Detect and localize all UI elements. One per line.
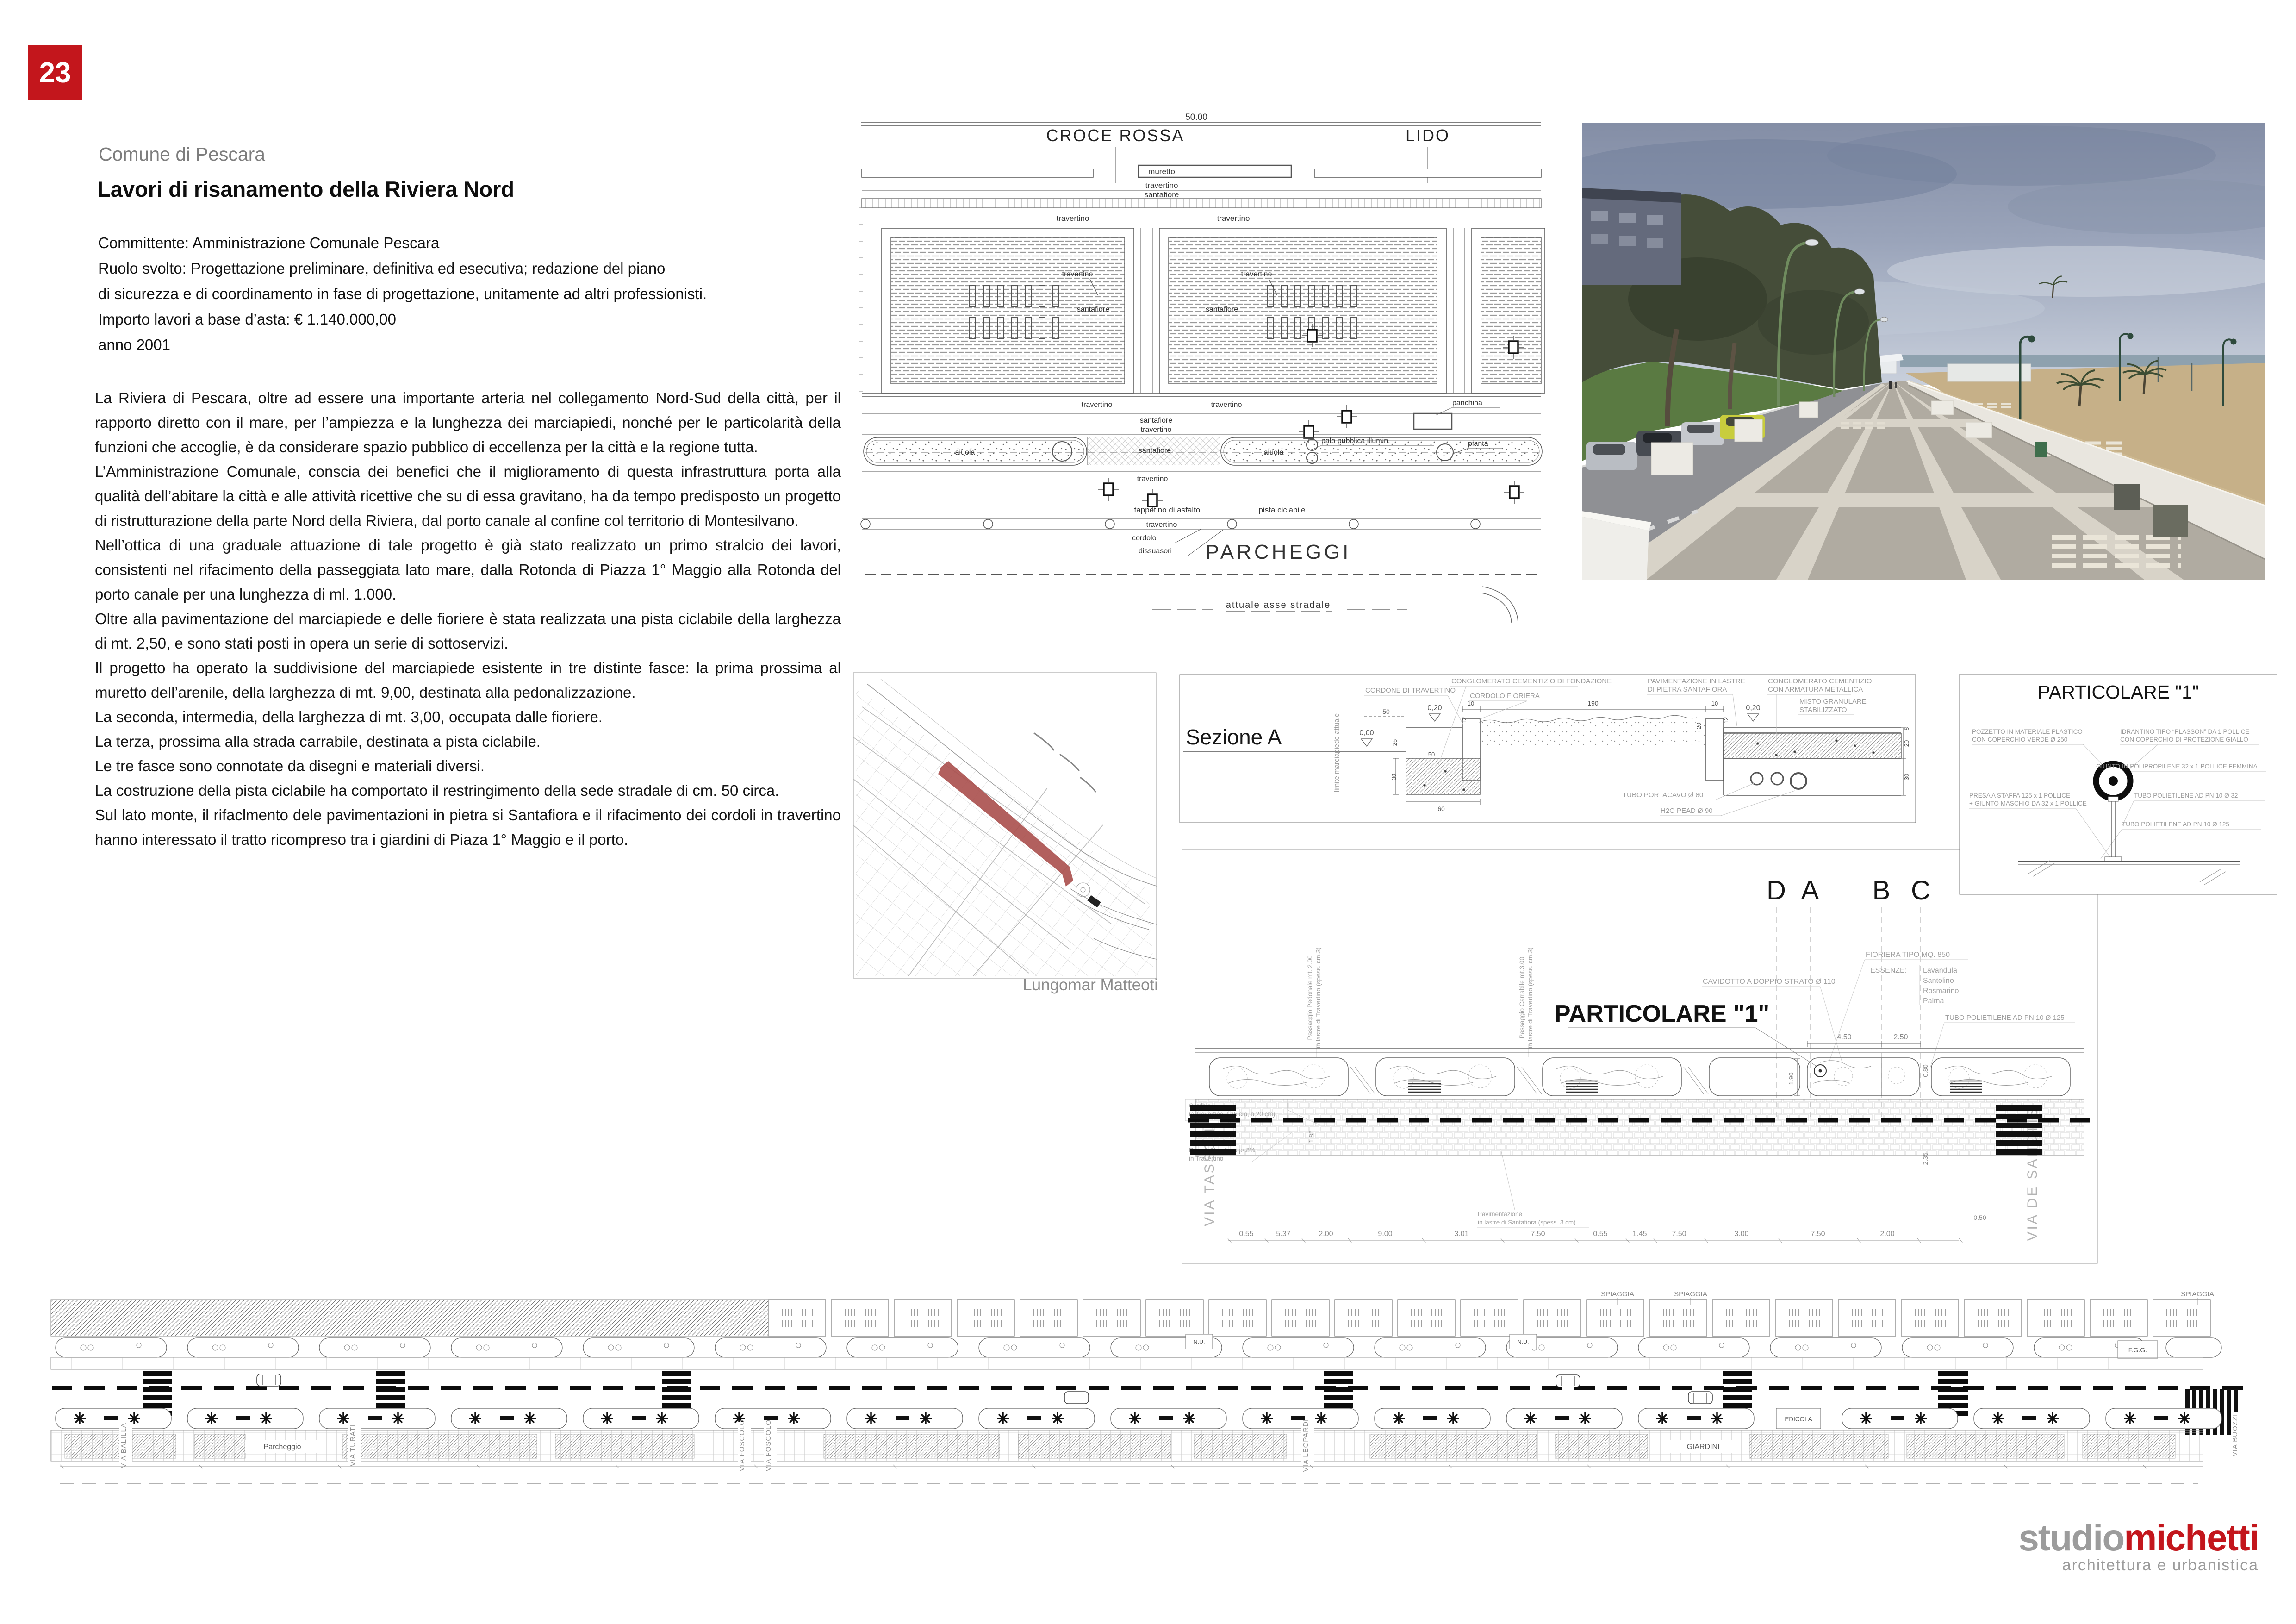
particolare-callout: PARTICOLARE "1" — [1555, 1000, 1769, 1027]
pedonale-label: Passaggio Pedonale mt. 2.00 — [1306, 955, 1313, 1040]
beach-hatch — [51, 1300, 768, 1336]
tubo125-label: TUBO POLIETILENE AD PN 10 Ø 125 — [1945, 1014, 2065, 1022]
essenza-label: Palma — [1923, 997, 1944, 1005]
idrantino-dot — [1819, 1069, 1822, 1073]
santafiore-label: santafiore — [1139, 447, 1171, 455]
logo-michetti: michetti — [2124, 1517, 2259, 1558]
dim: 10 — [1468, 700, 1474, 707]
travertino-label: travertino — [1211, 401, 1242, 409]
dim: 0,20 — [1427, 704, 1442, 712]
pozzetto-label-2: CON COPERCHIO VERDE Ø 250 — [1972, 736, 2067, 743]
pavimentazione-label: PAVIMENTAZIONE IN LASTRE — [1648, 677, 1745, 685]
lido-label: LIDO — [1406, 126, 1450, 145]
santafiore-label: santafiore — [1077, 306, 1109, 313]
chain-dim: 3.01 — [1454, 1230, 1468, 1238]
muretto-label: muretto — [1148, 167, 1175, 176]
dim: 0.50 — [1973, 1214, 1986, 1221]
particolare-detail-box: PARTICOLARE "1" POZZETTO IN MATERIALE PL… — [1959, 674, 2277, 895]
dim: 50 — [1428, 751, 1435, 758]
travertino-label: travertino — [1082, 401, 1113, 409]
page-number-badge: 23 — [28, 45, 82, 100]
paragraph: La seconda, intermedia, della larghezza … — [95, 705, 841, 729]
idrantino-label: IDRANTINO TIPO “PLASSON” DA 1 POLLICE — [2120, 728, 2250, 735]
parking-areas — [65, 1434, 2175, 1458]
dim: 30 — [1390, 774, 1397, 780]
dim: 25 — [1391, 739, 1398, 746]
chain-dim: 1.45 — [1632, 1230, 1647, 1238]
travertino-label: travertino — [1217, 214, 1250, 223]
dim: 5 — [1904, 727, 1910, 730]
via-buozzi-label: VIA BUOZZI — [2231, 1414, 2239, 1457]
travertino-label: travertino — [1062, 270, 1093, 278]
via-balilla-label: VIA BALILLA — [120, 1423, 128, 1468]
dim: 60 — [1437, 805, 1445, 812]
tappetino-label: tappetino di asfalto — [1134, 506, 1201, 514]
pavimentazione-label-2: in lastre di Santafiora (spess. 3 cm) — [1478, 1219, 1576, 1226]
dissuasori-label: dissuasori — [1139, 547, 1172, 555]
planter-row-bottom — [56, 1408, 2221, 1429]
letter-c: C — [1911, 875, 1930, 906]
giunto-label: GIUNTO IN POLIPROPILENE 32 x 1 POLLICE F… — [2096, 763, 2258, 770]
roundabout — [1076, 883, 1090, 897]
chain-dim: 7.50 — [1811, 1230, 1825, 1238]
chain-dim: 5.37 — [1276, 1230, 1290, 1238]
misto-label-2: STABILIZZATO — [1799, 706, 1847, 714]
dim: 12 — [1723, 717, 1730, 724]
misto-label: MISTO GRANULARE — [1799, 698, 1867, 706]
edicola-label: EDICOLA — [1785, 1416, 1812, 1423]
essenza-label: Santolino — [1923, 977, 1954, 985]
cordolo-fioriera-label: CORDOLO FIORIERA — [1470, 692, 1540, 700]
conglomerato-label: CONGLOMERATO CEMENTIZIO — [1768, 677, 1872, 685]
aiuola-label: aiuola — [955, 449, 975, 456]
croce-rossa-label: CROCE ROSSA — [1046, 126, 1184, 145]
dim: 1.90 — [1787, 1072, 1795, 1085]
map-pescara — [853, 672, 1157, 979]
letter-d: D — [1767, 875, 1786, 906]
nu-label: N.U. — [1518, 1339, 1529, 1345]
strip-plan-riviera: SPIAGGIA SPIAGGIA SPIAGGIA N.U. N.U. F.G… — [46, 1273, 2249, 1514]
parcheggi-label: PARCHEGGI — [1206, 541, 1351, 563]
paragraph: Oltre alla pavimentazione del marciapied… — [95, 606, 841, 656]
logo-studio: studio — [2018, 1517, 2124, 1558]
dim: 20 — [1695, 723, 1702, 729]
idrantino-label-2: CON COPERCHIO DI PROTEZIONE GIALLO — [2120, 736, 2248, 743]
pavimentazione-label-2: DI PIETRA SANTAFIORA — [1648, 686, 1727, 693]
dim: 190 — [1587, 700, 1599, 707]
paragraph: Le tre fasce sono connotate da disegni e… — [95, 754, 841, 778]
cordone-label: CORDONE DI TRAVERTINO — [1365, 687, 1456, 694]
map-caption: Lungomar Matteoti — [981, 976, 1158, 994]
paragraph: La Riviera di Pescara, oltre ad essere u… — [95, 386, 841, 459]
santafiore-label: santafiore — [1145, 190, 1179, 199]
pianta-label: pianta — [1468, 440, 1488, 448]
carrabile-label-2: in lastre di Travertino (spess. cm.3) — [1526, 947, 1534, 1048]
letter-b: B — [1873, 875, 1891, 906]
paragraph: L’Amministrazione Comunale, conscia dei … — [95, 459, 841, 533]
conglomerato-label-2: CON ARMATURA METALLICA — [1768, 686, 1863, 693]
detail-committente: Committente: Amministrazione Comunale Pe… — [98, 230, 857, 256]
dim: 1.85 — [1307, 1130, 1315, 1143]
tubo-portacavo-label: TUBO PORTACAVO Ø 80 — [1623, 791, 1703, 799]
detail-anno: anno 2001 — [98, 332, 857, 357]
cordolo-label: cordolo — [1132, 534, 1157, 542]
plan-detail-drawing: D A B C PARTICOLARE "1" CAVIDOTTO A DOPP… — [1182, 849, 2098, 1264]
spiaggia-label: SPIAGGIA — [1601, 1290, 1634, 1298]
chain-dim: 2.00 — [1319, 1230, 1333, 1238]
page-title: Lavori di risanamento della Riviera Nord — [97, 176, 514, 202]
pista-ciclabile-label: pista ciclabile — [1258, 506, 1305, 514]
chain-dim: 3.00 — [1734, 1230, 1748, 1238]
dim: 0,00 — [1359, 729, 1374, 737]
travertino-label: travertino — [1241, 270, 1272, 278]
plan-detail-frame — [1182, 850, 2097, 1263]
chain-dim: 2.00 — [1880, 1230, 1894, 1238]
tree-shadow — [1758, 290, 1869, 355]
beach-panels — [768, 1300, 2210, 1336]
detail-importo: Importo lavori a base d’asta: € 1.140.00… — [98, 306, 857, 332]
logo-subtitle: architettura e urbanistica — [1805, 1557, 2259, 1573]
paragraph: Nell’ottica di una graduale attuazione d… — [95, 533, 841, 606]
pozzetto-label: POZZETTO IN MATERIALE PLASTICO — [1972, 728, 2083, 735]
essenze-label: ESSENZE: — [1870, 967, 1907, 974]
fioriera-label: FIORIERA TIPO MQ. 850 — [1866, 951, 1950, 959]
tubo125-label: TUBO POLIETILENE AD PN 10 Ø 125 — [2122, 821, 2229, 828]
parcheggio-label: Parcheggio — [264, 1443, 301, 1451]
section-drawing-sezione-a: Sezione A CORDONE DI TRAVERTINO — [1179, 674, 1916, 823]
photo-promenade — [1582, 123, 2265, 580]
tubo32-label: TUBO POLIETILENE AD PN 10 Ø 32 — [2134, 792, 2238, 799]
essenza-label: Lavandula — [1923, 967, 1957, 974]
fgg-label: F.G.G. — [2128, 1346, 2147, 1354]
letter-a: A — [1801, 875, 1819, 906]
via-leopardi-label: VIA LEOPARDI — [1302, 1419, 1310, 1472]
dim: 4.50 — [1837, 1033, 1851, 1041]
h2o-label: H2O PEAD Ø 90 — [1661, 807, 1713, 815]
page-number: 23 — [39, 56, 71, 89]
travertino-label: travertino — [1146, 521, 1177, 529]
paragraph: Sul lato monte, il rifaclmento dele pavi… — [95, 803, 841, 852]
pavimentazione-label: Pavimentazione — [1478, 1211, 1522, 1218]
asse-stradale-label: attuale asse stradale — [1226, 600, 1331, 610]
conglomerato-fond-label: CONGLOMERATO CEMENTIZIO DI FONDAZIONE — [1451, 677, 1612, 685]
dim: 0.80 — [1922, 1064, 1929, 1077]
planter-row-top — [56, 1338, 2221, 1357]
dim: 12 — [1461, 717, 1468, 724]
travertino-label: travertino — [1141, 426, 1172, 434]
plan-drawing-croce-rossa-lido: 50.00 CROCE ROSSA LIDO muretto travertin… — [856, 113, 1546, 646]
presa-label: PRESA A STAFFA 125 x 1 POLLICE — [1969, 792, 2070, 799]
carrabile-label: Passaggio Carrabile mt.3.00 — [1518, 956, 1525, 1038]
limite-label: limite marciapiede attuale — [1333, 713, 1341, 792]
dim: 2.35 — [1922, 1152, 1929, 1165]
giardini-label: GIARDINI — [1686, 1443, 1719, 1451]
chain-dim: 9.00 — [1378, 1230, 1392, 1238]
spiaggia-label: SPIAGGIA — [1674, 1290, 1707, 1298]
cavidotto-label: CAVIDOTTO A DOPPIO STRATO Ø 110 — [1703, 978, 1836, 986]
studio-logo: studiomichetti architettura e urbanistic… — [1805, 1519, 2259, 1573]
detail-ruolo: Ruolo svolto: Progettazione preliminare,… — [98, 256, 857, 281]
nu-label: N.U. — [1194, 1339, 1205, 1345]
project-details: Committente: Amministrazione Comunale Pe… — [98, 230, 857, 357]
panchina-label: panchina — [1452, 399, 1482, 407]
chain-dim: 7.50 — [1672, 1230, 1686, 1238]
dim: 50 — [1382, 708, 1390, 715]
travertino-label: travertino — [1145, 181, 1178, 190]
santafiore-label: santafiore — [1206, 306, 1238, 313]
paragraph: Il progetto ha operato la suddivisione d… — [95, 656, 841, 705]
section-title: Sezione A — [1186, 725, 1282, 749]
chain-dim: 0.55 — [1239, 1230, 1253, 1238]
santafiore-label: santafiore — [1140, 417, 1172, 425]
dim: 30 — [1903, 774, 1910, 780]
pretitle: Comune di Pescara — [99, 144, 265, 165]
dim-label: 50.00 — [1185, 113, 1207, 122]
paragraph: La terza, prossima alla strada carrabile… — [95, 729, 841, 754]
essenza-label: Rosmarino — [1923, 987, 1959, 995]
dim: 20 — [1903, 740, 1910, 747]
body-text: La Riviera di Pescara, oltre ad essere u… — [95, 386, 841, 852]
via-foscolo-label: VIA FOSCOLO — [738, 1419, 746, 1471]
detail-ruolo-2: di sicurezza e di coordinamento in fase … — [98, 281, 857, 306]
travertino-label: travertino — [1057, 214, 1089, 223]
via-foscolo-label: VIA FOSCOLO — [765, 1419, 772, 1471]
plan-lines — [859, 123, 1545, 623]
via-turati-label: VIA TURATI — [349, 1424, 357, 1466]
palo-label: palo pubblica illumin. — [1321, 437, 1390, 445]
dim: 2.50 — [1893, 1033, 1908, 1041]
aiuola-label: aiuola — [1264, 449, 1284, 456]
pedonale-label-2: in lastre di Travertino (spess. cm.3) — [1314, 947, 1322, 1048]
travertino-label: travertino — [1137, 475, 1168, 483]
strip-dimension-chain — [60, 1465, 2203, 1468]
spiaggia-label: SPIAGGIA — [2181, 1290, 2214, 1298]
dim: 0,20 — [1746, 704, 1760, 712]
presa-label-2: + GIUNTO MASCHIO DA 32 x 1 POLLICE — [1969, 800, 2087, 807]
paragraph: La costruzione della pista ciclabile ha … — [95, 778, 841, 803]
particolare-title: PARTICOLARE "1" — [2038, 681, 2199, 703]
chain-dim: 7.50 — [1531, 1230, 1545, 1238]
dim: 10 — [1711, 700, 1718, 707]
chain-dim: 0.55 — [1593, 1230, 1607, 1238]
building-silhouette — [1582, 188, 1681, 285]
sidewalk-band — [51, 1357, 2203, 1369]
